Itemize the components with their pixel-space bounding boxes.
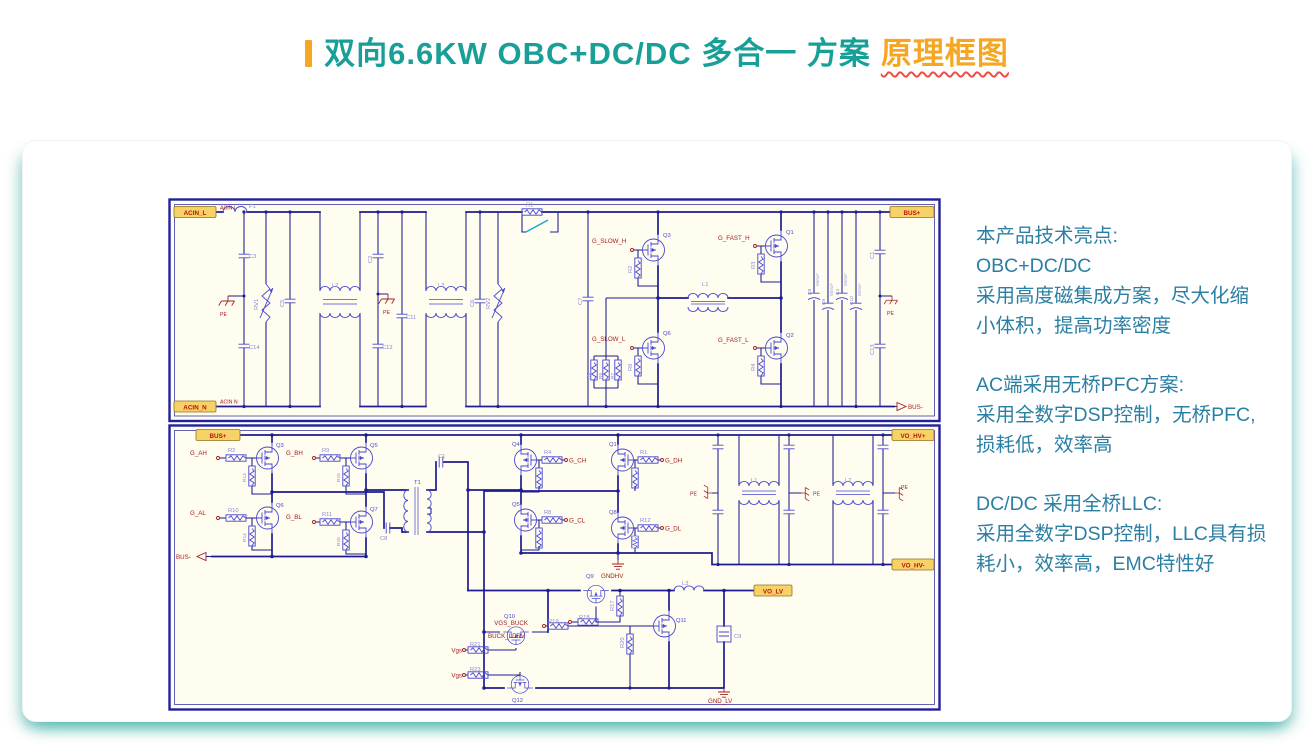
ref-c11: C11 — [406, 315, 416, 321]
ref-q6: Q6 — [663, 331, 671, 337]
note-block-highlights: 本产品技术亮点: OBC+DC/DC 采用高度磁集成方案，尽大化缩 小体积，提高… — [976, 221, 1306, 341]
sig-g-ah: G_AH — [190, 450, 207, 457]
ref-r2-lo: R2 — [228, 448, 235, 454]
ref-l2: L2 — [332, 283, 338, 289]
pe-label-2: PE — [383, 310, 390, 316]
note-block-pfc: AC端采用无桥PFC方案: 采用全数字DSP控制，无桥PFC, 损耗低，效率高 — [976, 370, 1306, 460]
ref-r19: R19 — [548, 619, 559, 625]
ref-rv2: RV2 — [486, 298, 492, 309]
port-vo-lv-label: VO_LV — [763, 588, 784, 595]
ref-r4: R4 — [751, 363, 757, 371]
net-bus-minus: BUS- — [908, 404, 923, 411]
ref-c4: C4 — [835, 289, 841, 295]
ref-r18: R18 — [579, 615, 590, 621]
ref-c2: C2 — [368, 256, 374, 263]
note-line: 小体积，提高功率密度 — [976, 311, 1306, 341]
sig-vgs-buck: VGS_BUCK — [494, 620, 529, 627]
sig-g-bl: G_BL — [286, 514, 302, 521]
net-bus-minus-lower: BUS- — [176, 554, 191, 561]
ref-r14: R14 — [242, 533, 248, 542]
ref-c10: C10 — [849, 296, 855, 305]
sig-g-fast-l: G_FAST_L — [718, 337, 749, 344]
pe-label-4: PE — [690, 492, 697, 498]
ref-r3: R3 — [751, 262, 757, 269]
ref-l3: L3 — [438, 283, 444, 289]
content-card: ACIN_L ACIN_N BUS+ ACIN L ACIN N BUS- F1… — [22, 140, 1292, 722]
sig-vgs-2: Vgs — [451, 673, 462, 680]
ref-c1: C1 — [870, 252, 876, 259]
ref-f1: F1 — [249, 204, 256, 210]
sig-g-slow-h: G_SLOW_H — [592, 238, 626, 245]
ref-c1-lo: C1 — [438, 454, 445, 460]
ref-r7: R7 — [610, 373, 616, 379]
val-c4: 560uF — [843, 273, 848, 286]
ref-l3-lo: L3 — [682, 581, 688, 587]
note-line: 本产品技术亮点: — [976, 221, 1306, 251]
ref-q1-lo: Q1 — [609, 442, 617, 448]
gndhv-label: GNDHV — [601, 573, 624, 580]
ref-r4-lo: R4 — [544, 450, 552, 456]
pe-label-6: PE — [901, 485, 908, 491]
ref-r8-lo: R8 — [544, 510, 551, 516]
ref-r21: R21 — [470, 642, 481, 648]
note-line: 损耗低，效率高 — [976, 430, 1306, 460]
ref-q8: Q8 — [609, 510, 617, 516]
ref-q12: Q12 — [512, 698, 523, 704]
page-title: 双向6.6KW OBC+DC/DC 多合一 方案原理框图 — [0, 28, 1314, 73]
note-line: OBC+DC/DC — [976, 251, 1306, 281]
gnd-lv-label: GND_LV — [708, 698, 733, 705]
lower-sheet-llc: BUS+ VO_HV+ VO_HV- VO_LV BUS- G_AH R2 R1… — [170, 426, 940, 710]
ref-c6: C6 — [470, 300, 476, 307]
ref-q10: Q10 — [504, 614, 515, 620]
note-line: AC端采用无桥PFC方案: — [976, 370, 1306, 400]
val-c9: 560uF — [829, 283, 834, 296]
upper-sheet-pfc: ACIN_L ACIN_N BUS+ ACIN L ACIN N BUS- F1… — [170, 200, 940, 422]
ref-c9: C9 — [821, 299, 827, 305]
sig-buck-ldrv: BUCK_LDRV — [488, 633, 526, 640]
title-accent-bar — [305, 40, 312, 67]
title-main: 双向6.6KW OBC+DC/DC 多合一 方案 — [324, 36, 871, 71]
net-acin-l: ACIN L — [220, 206, 237, 212]
sig-g-dh: G_DH — [665, 458, 682, 465]
ref-t1: T1 — [414, 480, 421, 486]
ref-l2-lo: L2 — [845, 478, 851, 484]
ref-q9: Q9 — [586, 574, 594, 580]
sig-g-al: G_AL — [190, 510, 206, 517]
ref-r23: R23 — [470, 667, 481, 673]
ref-r12: R12 — [640, 518, 651, 524]
port-vo-hv-plus-label: VO_HV+ — [900, 433, 925, 440]
pe-label-1: PE — [220, 312, 227, 318]
sig-g-dl: G_DL — [665, 526, 682, 533]
ref-c12: C12 — [382, 345, 393, 351]
port-vo-hv-minus-label: VO_HV- — [901, 562, 924, 569]
sig-g-slow-l: G_SLOW_L — [592, 336, 626, 343]
ref-q2: Q2 — [786, 333, 794, 339]
ref-r5: R5 — [586, 373, 592, 379]
sig-vgs-1: Vgs — [451, 648, 462, 655]
ref-rv1: RV1 — [254, 299, 260, 310]
circuit-schematic: ACIN_L ACIN_N BUS+ ACIN L ACIN N BUS- F1… — [168, 198, 941, 711]
pe-label-5: PE — [813, 492, 820, 498]
sig-g-cl: G_CL — [569, 518, 586, 525]
lower-sheet-border — [170, 426, 940, 710]
upper-sheet-border — [170, 200, 940, 422]
sig-g-bh: G_BH — [286, 450, 303, 457]
ref-c9-lo: C9 — [734, 634, 741, 640]
ref-q11: Q11 — [676, 618, 687, 624]
tech-notes: 本产品技术亮点: OBC+DC/DC 采用高度磁集成方案，尽大化缩 小体积，提高… — [976, 221, 1306, 608]
ref-q1: Q1 — [786, 230, 794, 236]
ref-c13: C13 — [870, 344, 876, 355]
port-bus-plus-label: BUS+ — [904, 210, 921, 217]
ref-r9: R9 — [322, 448, 329, 454]
ref-r17: R17 — [610, 600, 616, 611]
ref-r8: R8 — [628, 364, 634, 371]
note-line: 耗小，效率高，EMC特性好 — [976, 549, 1306, 579]
ref-r1: R1 — [526, 203, 533, 209]
val-c8: 560uF — [815, 273, 820, 286]
ref-r16: R16 — [336, 537, 342, 546]
ref-r2: R2 — [628, 266, 634, 273]
ref-c3: C3 — [249, 254, 256, 260]
ref-r1-lo: R1 — [640, 450, 647, 456]
note-line: 采用全数字DSP控制，无桥PFC, — [976, 400, 1306, 430]
ref-c14: C14 — [249, 345, 260, 351]
ref-l1-lo: L1 — [751, 478, 757, 484]
port-acin-l-label: ACIN_L — [184, 210, 207, 217]
ref-c8: C8 — [807, 289, 813, 295]
note-line: 采用高度磁集成方案，尽大化缩 — [976, 281, 1306, 311]
port-bus-plus-lower-label: BUS+ — [210, 433, 227, 440]
ref-q3: Q3 — [663, 233, 671, 239]
sig-g-fast-h: G_FAST_H — [718, 235, 750, 242]
ref-q6-lo: Q6 — [276, 503, 284, 509]
ref-q7-lo: Q7 — [370, 507, 378, 513]
port-acin-n-label: ACIN_N — [183, 404, 207, 411]
note-block-llc: DC/DC 采用全桥LLC: 采用全数字DSP控制，LLC具有损 耗小，效率高，… — [976, 489, 1306, 579]
ref-c5: C5 — [280, 300, 286, 307]
ref-q5-lo: Q5 — [370, 443, 378, 449]
ref-r6: R6 — [598, 373, 604, 379]
note-line: 采用全数字DSP控制，LLC具有损 — [976, 519, 1306, 549]
title-highlight: 原理框图 — [881, 36, 1009, 71]
net-acin-n: ACIN N — [220, 400, 238, 406]
ref-c8-lo: C8 — [380, 536, 387, 542]
ref-q3-lo: Q3 — [276, 443, 284, 449]
sig-g-ch: G_CH — [569, 458, 586, 465]
ref-q5s: Q5 — [512, 502, 520, 508]
ref-r10: R10 — [228, 508, 239, 514]
note-line: DC/DC 采用全桥LLC: — [976, 489, 1306, 519]
ref-c7: C7 — [578, 298, 584, 305]
val-c10: 560uF — [857, 283, 862, 296]
ref-r15: R15 — [336, 473, 342, 482]
ref-r20: R20 — [620, 637, 626, 648]
ref-r11: R11 — [322, 512, 332, 518]
ref-r13: R13 — [242, 473, 248, 482]
pe-label-3: PE — [887, 311, 894, 317]
ref-q4: Q4 — [512, 442, 521, 448]
ref-l1: L1 — [702, 282, 708, 288]
